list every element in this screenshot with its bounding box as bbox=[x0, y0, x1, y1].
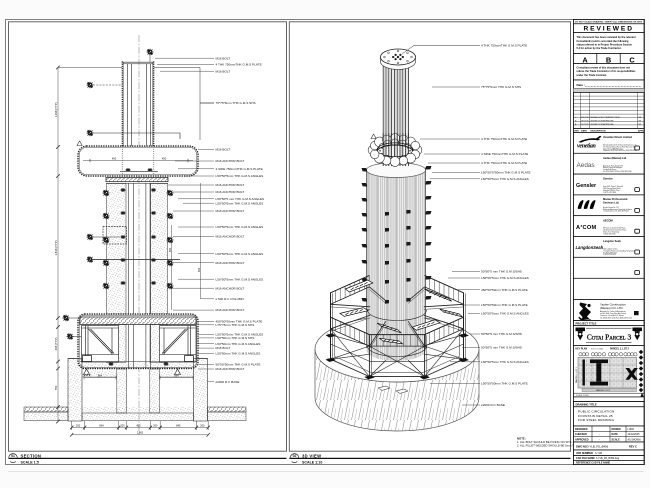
svg-text:200: 200 bbox=[120, 423, 125, 427]
svg-text:M16 ANCHOR BOLT: M16 ANCHOR BOLT bbox=[216, 209, 245, 213]
svg-text:200: 200 bbox=[153, 423, 158, 427]
svg-text:L50*50*5mm THK G.M.S ANGLES: L50*50*5mm THK G.M.S ANGLES bbox=[216, 252, 264, 256]
svg-text:4 THK 750mmTHK G.M.S PLATE: 4 THK 750mmTHK G.M.S PLATE bbox=[216, 62, 262, 66]
svg-text:608 (TYP): 608 (TYP) bbox=[54, 338, 58, 351]
svg-text:L50*50*50mm THK G.M.S PLATE: L50*50*50mm THK G.M.S PLATE bbox=[481, 303, 528, 307]
svg-text:T: (852) 3922 9000: T: (852) 3922 9000 bbox=[603, 233, 616, 235]
svg-text:M16 ANCHOR BOLT: M16 ANCHOR BOLT bbox=[216, 159, 245, 163]
svg-text:L50*50*5mm THK G.M.S ANGLES: L50*50*5mm THK G.M.S ANGLES bbox=[216, 277, 264, 281]
svg-text:M16 BOLT: M16 BOLT bbox=[216, 346, 231, 350]
svg-text:Date :: Date : bbox=[577, 83, 585, 87]
svg-text:Consultant review of this docu: Consultant review of this document does … bbox=[577, 67, 631, 70]
svg-text:Gensler: Gensler bbox=[576, 183, 597, 189]
svg-text:ISSUED FOR APPROVAL: ISSUED FOR APPROVAL bbox=[591, 119, 615, 122]
svg-text:L50*50*5mm THK G.M.S ANGLES: L50*50*5mm THK G.M.S ANGLES bbox=[481, 360, 529, 364]
svg-text:450*50*50mm THK G.M.S PLATE: 450*50*50mm THK G.M.S PLATE bbox=[481, 288, 528, 292]
svg-text:venetian: venetian bbox=[577, 144, 597, 150]
svg-text:Shanghai 200040, China: Shanghai 200040, China bbox=[603, 190, 620, 192]
svg-text:L50*50*5mm THK G.M.S ANGLES: L50*50*5mm THK G.M.S ANGLES bbox=[216, 174, 264, 178]
svg-text:4 SIDE 750mmTHK G.M.S PLATE: 4 SIDE 750mmTHK G.M.S PLATE bbox=[216, 167, 263, 171]
svg-text:DO NOT SCALE DRAWING. VERIFY A: DO NOT SCALE DRAWING. VERIFY ALL DIMENSI… bbox=[575, 21, 643, 24]
svg-text:L50*50*50mm THK G.M.S PLATE: L50*50*50mm THK G.M.S PLATE bbox=[481, 382, 528, 386]
svg-text:PARCEL 1, LOT 1: PARCEL 1, LOT 1 bbox=[575, 366, 578, 383]
svg-text:L50*50*5mm THK G.M.S ANGLES: L50*50*5mm THK G.M.S ANGLES bbox=[481, 276, 529, 280]
svg-text:REFERENCE CAD FILE NAME: REFERENCE CAD FILE NAME bbox=[576, 462, 611, 465]
svg-text:Venetian Orient Limited: Venetian Orient Limited bbox=[603, 135, 632, 139]
svg-text:ISSUED FOR APPROVAL: ISSUED FOR APPROVAL bbox=[591, 123, 615, 126]
svg-text:75*75*6mm THK G.M.S SHS: 75*75*6mm THK G.M.S SHS bbox=[481, 85, 521, 89]
svg-text:L50*50*5mm THK G.M.S ANGLES: L50*50*5mm THK G.M.S ANGLES bbox=[481, 312, 529, 316]
svg-text:Langdon Seah: Langdon Seah bbox=[603, 239, 621, 243]
svg-text:DATE: DATE bbox=[612, 433, 619, 436]
svg-text:ISSUED FOR CONSTRUCTION: ISSUED FOR CONSTRUCTION bbox=[591, 117, 620, 119]
svg-text:50*50*5 mm THK G.M.S/SHS: 50*50*5 mm THK G.M.S/SHS bbox=[481, 270, 522, 274]
svg-text:450: 450 bbox=[162, 157, 167, 161]
svg-text:500: 500 bbox=[168, 247, 172, 252]
svg-text:SCALE 1:2000: SCALE 1:2000 bbox=[576, 394, 589, 397]
svg-text:500: 500 bbox=[197, 267, 201, 272]
svg-text:AECOM: AECOM bbox=[603, 218, 613, 222]
svg-text:AS SHOWN: AS SHOWN bbox=[628, 438, 641, 441]
svg-text:Consultant(s) and is accorded: Consultant(s) and is accorded the follow… bbox=[577, 40, 629, 43]
svg-text:200: 200 bbox=[200, 423, 205, 427]
svg-text:L50*50mm THK G.M.S ANGLES: L50*50mm THK G.M.S ANGLES bbox=[216, 351, 261, 355]
svg-text:75*75*6mm THK G.M.S SHS: 75*75*6mm THK G.M.S SHS bbox=[216, 101, 256, 105]
svg-text:A³COM: A³COM bbox=[576, 224, 596, 231]
svg-text:SCALE: SCALE bbox=[612, 438, 621, 441]
svg-text:Tel: (852) 2830 3500: Tel: (852) 2830 3500 bbox=[603, 252, 617, 254]
svg-text:M16 ANCHOR BOLT: M16 ANCHOR BOLT bbox=[216, 190, 245, 194]
svg-text:SCALE 1:10: SCALE 1:10 bbox=[302, 460, 322, 464]
svg-text:864: 864 bbox=[99, 423, 104, 427]
svg-text:status referred to in Projec: status referred to in Project Procedure … bbox=[577, 43, 633, 46]
svg-text:Cotai Parcel 3: Cotai Parcel 3 bbox=[587, 332, 632, 341]
svg-text:1,298 (TYP): 1,298 (TYP) bbox=[54, 102, 58, 117]
svg-text:Tel: (853) 2875 1230 Fax: (85: Tel: (853) 2875 1230 Fax: (853) 2875 123… bbox=[600, 317, 632, 319]
svg-text:PARCEL 1, LOT 2: PARCEL 1, LOT 2 bbox=[610, 347, 630, 350]
svg-text:Gensler: Gensler bbox=[603, 177, 613, 181]
svg-text:864: 864 bbox=[174, 374, 179, 378]
svg-text:3D VIEW: 3D VIEW bbox=[302, 453, 321, 458]
svg-text:05/01/16: 05/01/16 bbox=[581, 117, 590, 119]
svg-text:SCALE 1:5: SCALE 1:5 bbox=[21, 460, 39, 464]
svg-text:SECTION: SECTION bbox=[21, 453, 42, 458]
svg-text:200: 200 bbox=[76, 423, 81, 427]
svg-text:50*50*5 mm THK G.M.S/SHS: 50*50*5 mm THK G.M.S/SHS bbox=[481, 332, 522, 336]
svg-text:Aedas (Macau) Ltd.: Aedas (Macau) Ltd. bbox=[603, 156, 627, 160]
svg-text:845: 845 bbox=[176, 423, 181, 427]
svg-text:4 THK 750mmTHK G.M.S PLATE: 4 THK 750mmTHK G.M.S PLATE bbox=[481, 137, 527, 141]
svg-text:2,862: 2,862 bbox=[137, 431, 144, 435]
svg-text:DESIGNED: DESIGNED bbox=[575, 428, 588, 431]
svg-text:450: 450 bbox=[112, 157, 117, 161]
svg-text:M16 ANCHOR BOLT: M16 ANCHOR BOLT bbox=[216, 183, 245, 187]
svg-text:relieve the Trade Contractor o: relieve the Trade Contractor of its resp… bbox=[577, 70, 637, 73]
svg-text:Services Ltd.: Services Ltd. bbox=[603, 200, 619, 204]
svg-text:This document has been reviewe: This document has been reviewed by the r… bbox=[577, 36, 636, 39]
svg-text:Telephone: (853) 2882 8888 Fa: Telephone: (853) 2882 8888 Fax: (853) 28… bbox=[603, 150, 637, 152]
svg-text:L50*50*5 mm THK G.M.S ANGLES: L50*50*5 mm THK G.M.S ANGLES bbox=[216, 197, 265, 201]
svg-text:14/12/15: 14/12/15 bbox=[581, 124, 590, 126]
svg-text:3-YLB_FD_B456.dwg: 3-YLB_FD_B456.dwg bbox=[596, 457, 620, 460]
svg-text:4 SIDE 750mmTHK G.M.S PLATE: 4 SIDE 750mmTHK G.M.S PLATE bbox=[481, 152, 528, 156]
svg-text:REVIEWED: REVIEWED bbox=[584, 26, 634, 33]
svg-text:F: (852) 2576 0416: F: (852) 2576 0416 bbox=[603, 254, 616, 256]
svg-text:L50*50mm THK G.M.S ANGLES: L50*50mm THK G.M.S ANGLES bbox=[216, 342, 261, 346]
svg-text:(Macau) CO. LTD.: (Macau) CO. LTD. bbox=[600, 306, 624, 310]
svg-text:L50*50*5*50mm THK G.M.S PLATE: L50*50*5*50mm THK G.M.S PLATE bbox=[481, 171, 531, 175]
svg-text:DWG NO: DWG NO bbox=[576, 444, 587, 448]
svg-text:750: 750 bbox=[54, 385, 58, 390]
svg-text:DRAWN: DRAWN bbox=[612, 428, 621, 431]
svg-text:L50*50*5mm THK G.M.S ANGLES: L50*50*5mm THK G.M.S ANGLES bbox=[216, 225, 264, 229]
svg-text:CHECKED: CHECKED bbox=[575, 433, 587, 436]
svg-text:2. ALL FILLET WELDED SHOULD BE: 2. ALL FILLET WELDED SHOULD BE 5mm THK. bbox=[517, 443, 579, 447]
svg-text:14/12/2015: 14/12/2015 bbox=[628, 433, 641, 436]
svg-text:5.4 for action by the Trade Co: 5.4 for action by the Trade Contractor. bbox=[577, 47, 622, 50]
svg-text:28/12/15: 28/12/15 bbox=[581, 120, 590, 122]
svg-text:50*50*50mm THK G.M.S PLATE: 50*50*50mm THK G.M.S PLATE bbox=[216, 362, 261, 366]
svg-text:under the Trade Contract.: under the Trade Contract. bbox=[577, 74, 608, 77]
svg-text:DRAWING TITLE: DRAWING TITLE bbox=[576, 403, 597, 407]
svg-text:REV C: REV C bbox=[629, 444, 637, 448]
svg-text:1,838 (TYP): 1,838 (TYP) bbox=[54, 240, 58, 255]
svg-text:≥2000 R.C BASE: ≥2000 R.C BASE bbox=[216, 380, 240, 384]
svg-text:M16 ANCHOR BOLT: M16 ANCHOR BOLT bbox=[216, 261, 245, 265]
svg-text:3-YLB_FD_B456: 3-YLB_FD_B456 bbox=[587, 444, 609, 448]
svg-text:M16 ANCHOR BOLT: M16 ANCHOR BOLT bbox=[216, 308, 245, 312]
svg-text:L75*75mm THK G.M.S SHS: L75*75mm THK G.M.S SHS bbox=[216, 323, 255, 327]
svg-text:M16 BOLT: M16 BOLT bbox=[216, 147, 231, 151]
svg-text:≥ 500 R.C COLUMN: ≥ 500 R.C COLUMN bbox=[216, 297, 244, 301]
svg-text:L50*50mm THK G.M.S SHS: L50*50mm THK G.M.S SHS bbox=[216, 336, 255, 340]
svg-text:3-YLB: 3-YLB bbox=[595, 452, 602, 455]
svg-text:Tel: (853) 2833 1733 Fax: (85: Tel: (853) 2833 1733 Fax: (853) 2833 106… bbox=[603, 171, 632, 173]
svg-text:B: B bbox=[606, 55, 611, 64]
svg-text:C: C bbox=[629, 55, 635, 64]
svg-text:Rua de Xangai No. 175,: Rua de Xangai No. 175, bbox=[603, 207, 620, 209]
svg-text:PARCEL 2 LOT: PARCEL 2 LOT bbox=[596, 389, 611, 392]
svg-text:L50*50*5mm THK G.M.S ANGLES: L50*50*5mm THK G.M.S ANGLES bbox=[481, 177, 529, 181]
svg-text:KEY PLAN: KEY PLAN bbox=[576, 347, 588, 350]
svg-text:864: 864 bbox=[98, 374, 103, 378]
svg-text:PROJECT TITLE: PROJECT TITLE bbox=[576, 322, 597, 326]
svg-text:L50*50*5mm THK G.M.S ANGLES: L50*50*5mm THK G.M.S ANGLES bbox=[216, 201, 264, 205]
svg-text:4 THK 750mmTHK G.M.S PLATE: 4 THK 750mmTHK G.M.S PLATE bbox=[481, 44, 527, 48]
svg-text:T: 86 21 6157 6888: T: 86 21 6157 6888 bbox=[603, 192, 616, 194]
svg-text:M16 ANCHOR BOLT: M16 ANCHOR BOLT bbox=[216, 367, 245, 371]
svg-text:LangdonSeah: LangdonSeah bbox=[576, 245, 604, 250]
svg-text:CAD FILE NAME: CAD FILE NAME bbox=[576, 457, 595, 460]
svg-text:450: 450 bbox=[136, 423, 141, 427]
svg-text:A: A bbox=[582, 55, 588, 64]
svg-text:4 THK 750mmTHK G.M.S PLATE: 4 THK 750mmTHK G.M.S PLATE bbox=[481, 161, 527, 165]
svg-text:≥2000 R.C BASE: ≥2000 R.C BASE bbox=[481, 403, 505, 407]
svg-text:LUND: LUND bbox=[628, 428, 635, 431]
svg-text:01: 01 bbox=[11, 454, 15, 458]
svg-text:JOB NUMBER: JOB NUMBER bbox=[576, 452, 593, 455]
svg-text:02: 02 bbox=[293, 454, 297, 458]
svg-text:M16 BOLT: M16 BOLT bbox=[216, 69, 231, 73]
svg-text:Aedas: Aedas bbox=[577, 162, 595, 169]
svg-text:FOR STEEL DRAWING: FOR STEEL DRAWING bbox=[578, 418, 615, 422]
svg-text:M16 ANCHOR BOLT: M16 ANCHOR BOLT bbox=[216, 234, 245, 238]
svg-text:50*50*5 mm THK G.M.S/SHS: 50*50*5 mm THK G.M.S/SHS bbox=[481, 346, 522, 350]
svg-text:M16 BOLT: M16 BOLT bbox=[216, 56, 231, 60]
svg-text:M16 ANCHOR BOLT: M16 ANCHOR BOLT bbox=[216, 286, 245, 290]
svg-text:APPROVED: APPROVED bbox=[575, 438, 589, 441]
svg-text:N.T.S / 1:2000: N.T.S / 1:2000 bbox=[591, 348, 603, 350]
